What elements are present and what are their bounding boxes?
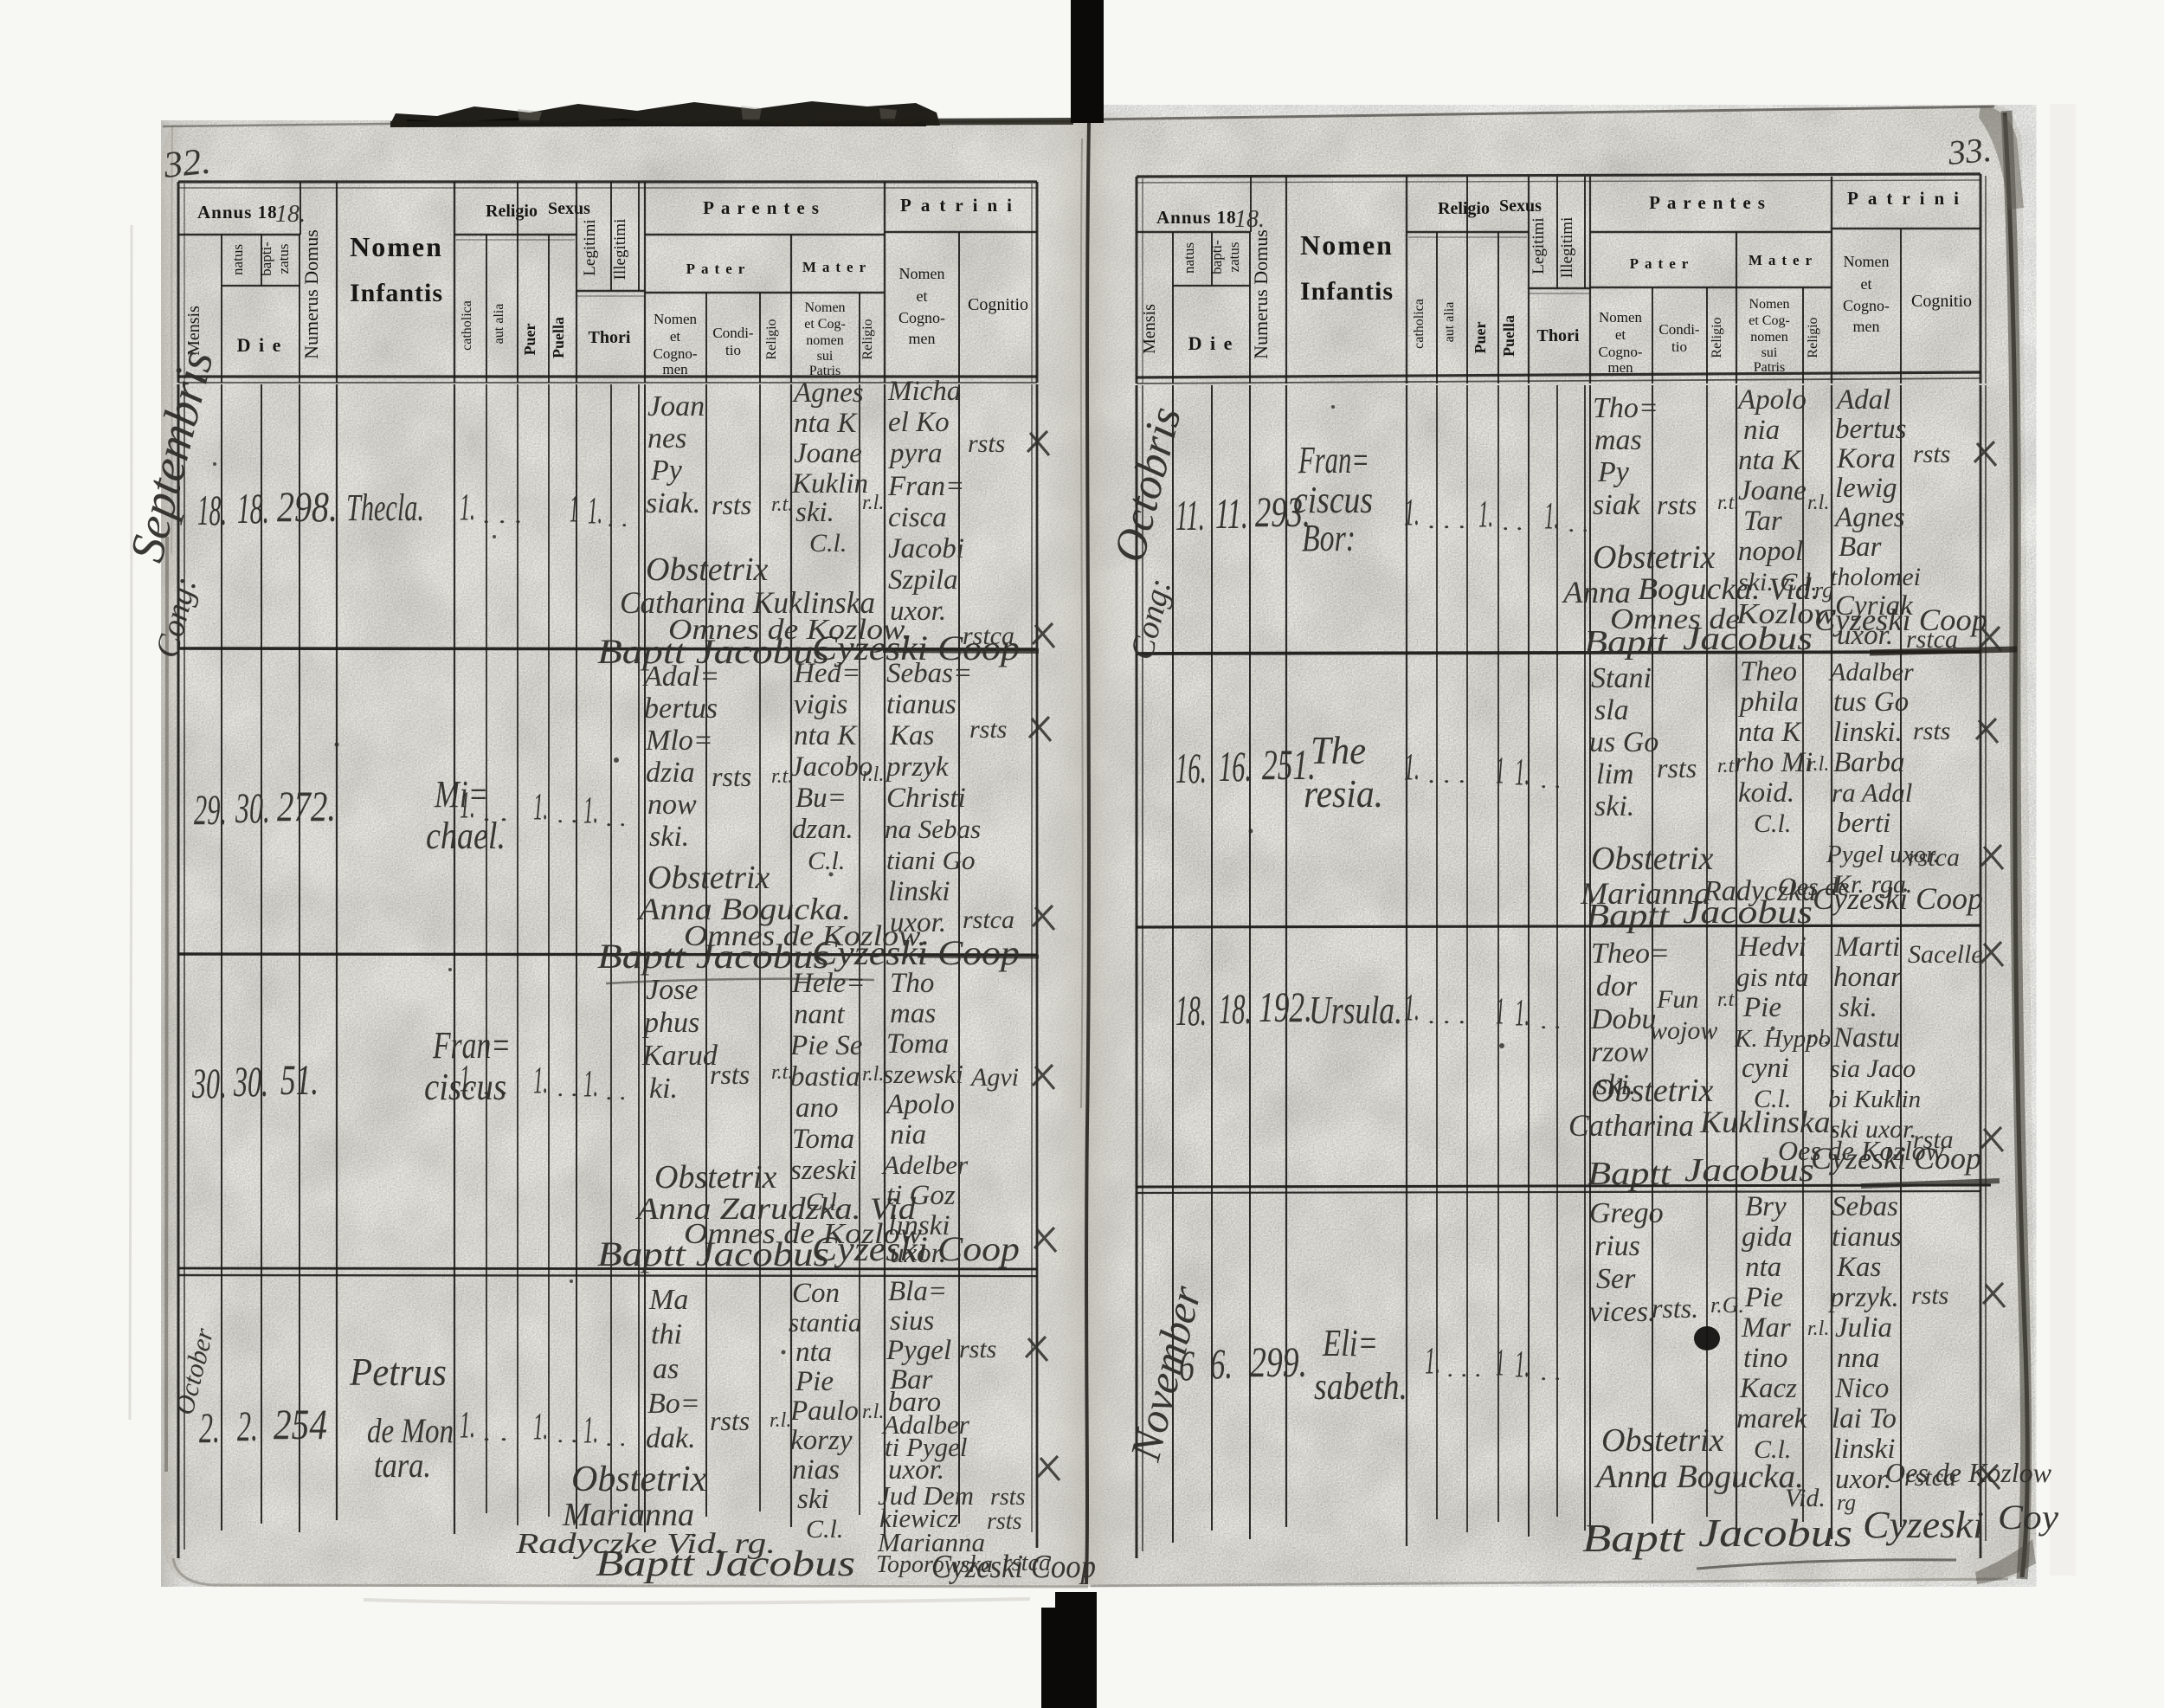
svg-text:Adal=: Adal= [642,661,719,693]
svg-text:Obstetrix: Obstetrix [1591,1073,1714,1109]
svg-text:16.: 16. [1219,742,1252,790]
svg-text:1.: 1. [583,1408,598,1451]
svg-text:Pie Se: Pie Se [789,1030,862,1061]
svg-text:299.: 299. [1250,1337,1307,1386]
svg-text:1.: 1. [1404,986,1420,1028]
svg-text:Fun: Fun [1656,985,1698,1014]
svg-text:Bar: Bar [1839,532,1882,563]
svg-text:1.: 1. [460,1403,475,1446]
svg-text:Obstetrix: Obstetrix [1593,539,1716,576]
svg-text:sui: sui [1761,345,1778,360]
svg-text:Bo=: Bo= [647,1388,700,1420]
svg-text:. .: . . [1503,510,1523,535]
svg-text:Cogno-: Cogno- [1843,297,1890,314]
svg-text:Nico: Nico [1834,1373,1889,1404]
svg-text:Nomen: Nomen [1300,229,1394,261]
svg-text:przyk.: przyk. [1828,1282,1899,1313]
svg-text:Religio: Religio [1438,199,1490,218]
svg-text:na Sebas: na Sebas [885,814,981,844]
svg-text:Numerus Domus: Numerus Domus [1250,229,1272,359]
svg-text:lai To: lai To [1832,1403,1897,1434]
svg-text:Marti: Marti [1834,931,1900,963]
svg-text:Kuklin: Kuklin [791,468,868,500]
svg-text:tianus: tianus [1832,1221,1902,1253]
svg-text:tholomei: tholomei [1830,563,1921,591]
svg-text:tio: tio [1671,338,1687,355]
svg-text:6: 6 [1179,1341,1195,1389]
svg-text:tus Go: tus Go [1833,686,1909,718]
svg-text:Religio: Religio [860,319,875,359]
svg-text:Cogno-: Cogno- [1599,344,1643,360]
svg-text:Fran=: Fran= [887,471,964,502]
svg-text:18.: 18. [1234,206,1265,233]
svg-text:Cyzeski Coop: Cyzeski Coop [812,1229,1020,1268]
svg-text:Religio: Religio [1806,317,1820,358]
svg-text:thi: thi [651,1318,682,1350]
svg-text:rzow: rzow [1591,1036,1648,1068]
svg-text:D i e: D i e [237,334,283,356]
svg-text:as: as [653,1353,679,1385]
svg-text:zatus: zatus [275,244,292,274]
svg-text:rsts: rsts [990,1484,1026,1511]
svg-text:dak.: dak. [646,1422,696,1454]
svg-text:Toma: Toma [886,1028,949,1060]
svg-text:catholica: catholica [460,300,474,351]
svg-text:Obstetrix: Obstetrix [1591,841,1714,877]
svg-text:men: men [1853,318,1880,335]
svg-text:tiani Go: tiani Go [886,845,975,875]
svg-text:r.l.: r.l. [862,764,884,786]
svg-text:Barba: Barba [1833,747,1905,778]
svg-text:Kora: Kora [1836,443,1896,474]
svg-text:Dobu: Dobu [1590,1003,1657,1035]
svg-text:nes: nes [647,422,686,454]
svg-text:Catharina: Catharina [1568,1108,1694,1143]
svg-text:Baptt: Baptt [1582,1516,1685,1560]
svg-text:ski.: ski. [1839,992,1877,1023]
svg-text:1.: 1. [533,1059,548,1101]
svg-text:sia Jaco: sia Jaco [1830,1054,1916,1083]
svg-text:nta K: nta K [1738,717,1802,748]
svg-text:us Go: us Go [1589,726,1658,758]
svg-text:2.: 2. [199,1403,220,1452]
svg-text:tara.: tara. [374,1446,431,1485]
svg-text:Religio: Religio [764,319,779,359]
svg-text:Sexus: Sexus [1499,197,1542,216]
svg-text:18.: 18. [237,484,269,532]
svg-text:Jacobi: Jacobi [888,533,964,564]
svg-text:Toma: Toma [792,1124,854,1155]
svg-text:siak.: siak. [646,487,700,519]
svg-text:Py: Py [1597,456,1630,488]
svg-text:ki.: ki. [649,1073,678,1105]
svg-text:Legitimi: Legitimi [1530,217,1548,274]
svg-text:rsts.: rsts. [1652,1292,1698,1324]
svg-text:1: 1 [1496,749,1504,791]
svg-text:11.: 11. [1215,489,1248,538]
svg-text:16.: 16. [1175,744,1207,792]
svg-text:Hedvi: Hedvi [1737,931,1807,963]
svg-text:korzy: korzy [790,1425,853,1456]
svg-text:r.l.: r.l. [862,492,884,514]
svg-text:r.l.: r.l. [862,1401,884,1423]
svg-text:Nomen: Nomen [899,265,945,282]
svg-text:honar: honar [1833,962,1902,993]
svg-text:rsts: rsts [710,1059,750,1090]
svg-text:mas: mas [1594,424,1642,456]
svg-text:Religio: Religio [486,202,538,221]
svg-text:Obstetrix: Obstetrix [571,1460,707,1499]
svg-text:Baptt: Baptt [1588,1156,1672,1192]
svg-text:1.: 1. [588,489,602,532]
svg-text:ski.: ski. [649,821,689,853]
svg-text:18.: 18. [1219,984,1252,1033]
svg-text:rstca: rstca [1908,843,1960,872]
svg-text:Jacobo: Jacobo [790,751,873,783]
svg-text:1.: 1. [460,486,475,528]
svg-text:Py: Py [650,454,683,487]
svg-text:Cogno-: Cogno- [654,345,698,362]
svg-text:Sebas: Sebas [1832,1191,1898,1222]
svg-text:. .: . . [557,1076,578,1101]
svg-text:dzia: dzia [646,757,695,789]
svg-text:bapti-: bapti- [258,242,274,276]
svg-text:koid.: koid. [1738,777,1794,809]
svg-text:Kuklinska.: Kuklinska. [1699,1105,1839,1139]
svg-text:Illegitimi: Illegitimi [611,219,629,280]
svg-text:ano: ano [795,1092,839,1124]
svg-text:nta K: nta K [794,408,858,439]
svg-text:Hele=: Hele= [791,968,866,999]
svg-text:nia: nia [890,1119,926,1150]
svg-text:tio: tio [725,342,741,358]
svg-text:1.: 1. [583,1062,598,1105]
svg-text:men: men [1607,359,1633,376]
svg-text:nant: nant [794,999,846,1030]
svg-text:Patris: Patris [809,364,840,378]
svg-text:Puella: Puella [550,317,567,358]
svg-text:Baptt Jacobus: Baptt Jacobus [596,1544,855,1584]
svg-text:nomen: nomen [806,333,844,348]
svg-text:Jacobus: Jacobus [1683,621,1813,657]
svg-text:6.: 6. [1210,1339,1233,1388]
svg-text:Pygel: Pygel [886,1335,951,1366]
svg-text:Nomen: Nomen [654,311,698,327]
svg-text:men: men [909,330,936,347]
svg-text:Joane: Joane [1738,475,1807,506]
svg-text:rsts: rsts [1913,717,1950,745]
svg-text:Paulo: Paulo [789,1395,859,1427]
svg-text:Petrus: Petrus [349,1350,447,1394]
svg-text:18.: 18. [275,201,306,228]
svg-text:Bry: Bry [1745,1191,1787,1222]
svg-text:de Mon: de Mon [367,1411,454,1450]
svg-text:. .: . . [608,506,628,532]
svg-text:bastia: bastia [790,1061,860,1092]
svg-text:Cyzeski: Cyzeski [1863,1504,1984,1546]
svg-text:phila: phila [1738,686,1799,718]
svg-text:natus: natus [229,244,246,275]
svg-text:Joan: Joan [647,390,705,422]
svg-text:. .: . . [557,802,578,828]
svg-text:Mater: Mater [1749,252,1818,268]
svg-text:Patris: Patris [1754,360,1785,375]
svg-text:Obstetrix: Obstetrix [1601,1422,1724,1459]
svg-text:nta: nta [1745,1252,1781,1283]
svg-text:Tho: Tho [890,968,934,999]
svg-text:192.: 192. [1259,983,1312,1031]
svg-text:Jacobus: Jacobus [1683,894,1813,931]
svg-text:Nomen: Nomen [1599,309,1643,325]
svg-text:Adelber: Adelber [881,1150,969,1180]
svg-text:phus: phus [642,1007,699,1039]
svg-text:et Cog-: et Cog- [1749,313,1790,328]
svg-text:ski.: ski. [1594,790,1634,822]
svg-text:Puer: Puer [521,323,538,355]
svg-text:C.l.: C.l. [809,529,847,558]
svg-text:Parentes: Parentes [703,197,826,218]
svg-text:30.: 30. [235,783,270,832]
svg-text:Pie: Pie [795,1366,834,1397]
svg-text:aut alia: aut alia [492,304,506,345]
svg-text:Baptt: Baptt [1584,624,1669,661]
svg-text:Sacelle: Sacelle [1908,940,1983,969]
svg-text:1.: 1. [1515,991,1530,1034]
svg-text:Agnes: Agnes [792,377,864,409]
svg-text:Tho=: Tho= [1593,392,1658,424]
svg-text:. . .: . . . [1447,1357,1482,1382]
svg-text:Mater: Mater [802,259,872,275]
svg-text:rsts: rsts [968,429,1005,458]
svg-text:Ser: Ser [1596,1263,1636,1295]
svg-text:1.: 1. [1478,493,1493,535]
svg-text:Szpila: Szpila [888,564,958,596]
svg-text:catholica: catholica [1412,299,1427,349]
svg-text:Theo=: Theo= [1591,938,1670,970]
svg-text:nta K: nta K [1738,445,1802,476]
svg-text:Theo: Theo [1740,656,1797,687]
svg-text:1.: 1. [1425,1339,1440,1382]
svg-text:Illegitimi: Illegitimi [1558,217,1576,279]
svg-text:et: et [1615,326,1626,343]
svg-text:. .: . . [483,801,509,826]
svg-text:szewski: szewski [883,1059,963,1089]
svg-text:Agnes: Agnes [1833,502,1905,533]
svg-text:Jacobus: Jacobus [1684,1152,1814,1189]
svg-text:Cyzeski Coop: Cyzeski Coop [812,933,1020,972]
svg-text:et Cog-: et Cog- [804,317,846,332]
svg-text:tianus: tianus [886,689,956,720]
svg-text:Patrini: Patrini [900,195,1021,216]
svg-text:vices.: vices. [1589,1296,1655,1328]
svg-text:r.t.: r.t. [771,493,793,516]
svg-text:gida: gida [1742,1221,1793,1253]
svg-text:rstca: rstca [963,906,1014,934]
svg-text:et: et [917,287,928,305]
svg-text:Puer: Puer [1472,321,1489,353]
svg-text:rsts: rsts [959,1335,996,1363]
svg-text:Kacz: Kacz [1739,1373,1797,1404]
svg-text:berti: berti [1837,808,1890,839]
svg-text:Condi-: Condi- [712,325,754,341]
svg-text:Kas: Kas [1836,1252,1881,1283]
svg-text:Mensis: Mensis [1140,304,1159,354]
svg-text:resia.: resia. [1304,771,1383,815]
svg-text:nias: nias [792,1454,840,1486]
svg-text:Ursula.: Ursula. [1309,988,1402,1032]
svg-text:natus: natus [1181,242,1197,274]
svg-text:254: 254 [274,1400,327,1448]
svg-text:11.: 11. [1175,491,1205,539]
svg-text:Nomen: Nomen [804,300,845,315]
svg-text:Jose: Jose [646,974,698,1006]
svg-text:szeski: szeski [790,1155,857,1186]
svg-text:30.: 30. [191,1059,227,1107]
svg-text:nta K: nta K [794,720,858,751]
svg-text:gis nta: gis nta [1736,962,1809,992]
svg-text:r.G.: r.G. [1710,1292,1744,1318]
svg-text:cisca: cisca [888,502,947,533]
svg-text:Cyzeski Coop: Cyzeski Coop [1813,881,1983,916]
svg-text:marek: marek [1736,1403,1808,1434]
svg-text:Obstetrix: Obstetrix [646,551,769,588]
svg-text:rsts: rsts [987,1508,1022,1535]
svg-text:stantia: stantia [789,1307,861,1337]
svg-text:tino: tino [1743,1343,1787,1374]
svg-text:sla: sla [1594,694,1629,726]
svg-text:bertus: bertus [1835,414,1907,445]
svg-text:rsts: rsts [1911,1281,1948,1310]
svg-text:Apolo: Apolo [1736,384,1807,416]
svg-text:aut alia: aut alia [1442,302,1457,343]
svg-text:Hed=: Hed= [793,658,860,689]
svg-text:Apolo: Apolo [885,1089,955,1120]
svg-text:1.: 1. [1404,745,1420,788]
svg-text:Christi: Christi [886,783,966,814]
svg-text:Nastu: Nastu [1832,1022,1900,1054]
svg-text:Numerus Domus: Numerus Domus [300,229,322,359]
svg-text:Sebas=: Sebas= [886,658,972,689]
svg-text:Cognitio: Cognitio [968,295,1028,314]
svg-text:Tar: Tar [1743,506,1782,537]
svg-text:. .: . . [1541,768,1562,793]
svg-text:rsts: rsts [712,489,751,520]
svg-text:nta: nta [795,1337,832,1368]
svg-text:272.: 272. [277,782,336,830]
svg-text:29.: 29. [194,785,227,834]
svg-text:. .: . . [1568,512,1589,537]
svg-text:ski.: ski. [795,497,834,528]
svg-text:Stani: Stani [1591,662,1652,694]
svg-text:rsts: rsts [1657,752,1697,783]
svg-text:Pater: Pater [686,261,751,277]
svg-text:18.: 18. [1175,986,1207,1034]
svg-text:Jacobus: Jacobus [1698,1511,1852,1555]
svg-text:Ma: Ma [648,1284,688,1316]
svg-text:lewig: lewig [1835,473,1897,504]
svg-text:Bla=: Bla= [888,1276,947,1307]
svg-text:mas: mas [890,998,936,1029]
svg-text:Thori: Thori [589,328,631,347]
svg-text:Nomen: Nomen [1844,253,1890,270]
svg-text:ski: ski [797,1484,829,1515]
svg-text:Annus 18: Annus 18 [1156,207,1237,228]
svg-text:ciscus: ciscus [1293,479,1373,521]
svg-text:Bor:: Bor: [1302,517,1356,559]
svg-text:Patrini: Patrini [1847,188,1968,209]
svg-text:Karud: Karud [641,1040,718,1072]
svg-text:rsts: rsts [1657,489,1697,520]
svg-text:cyni: cyni [1742,1053,1789,1084]
svg-text:dor: dor [1596,970,1638,1002]
svg-text:Legitimi: Legitimi [581,219,599,275]
svg-text:298.: 298. [277,482,338,531]
svg-text:Oes de Kozlow: Oes de Kozlow [1885,1457,2052,1488]
svg-text:Pie: Pie [1744,1282,1783,1313]
svg-text:wojow: wojow [1650,1016,1717,1045]
svg-text:1.: 1. [1515,1343,1530,1385]
svg-text:. .: . . [1541,1360,1562,1385]
svg-text:Pater: Pater [1630,255,1695,272]
svg-text:Adal: Adal [1835,384,1890,416]
svg-text:et: et [670,328,681,345]
svg-text:. .: . . [483,1421,509,1446]
svg-text:r.l.: r.l. [1807,1027,1829,1049]
svg-text:Micha: Micha [887,376,961,407]
svg-text:sabeth.: sabeth. [1314,1365,1407,1408]
svg-text:Baptt Jacobus: Baptt Jacobus [597,1234,829,1273]
svg-text:Joane: Joane [794,438,862,469]
svg-text:Cognitio: Cognitio [1911,292,1972,311]
svg-text:Condi-: Condi- [1658,321,1700,338]
svg-text:linski.: linski. [1833,717,1903,748]
svg-text:Cyzeski Coop: Cyzeski Coop [931,1549,1096,1585]
svg-text:Vid.: Vid. [1785,1484,1826,1512]
svg-text:bi Kuklin: bi Kuklin [1828,1086,1921,1113]
svg-text:Adalber: Adalber [1828,658,1914,686]
svg-text:lim: lim [1596,758,1633,790]
svg-text:rsts: rsts [969,715,1007,744]
svg-text:r.l.: r.l. [770,1409,791,1432]
svg-text:bertus: bertus [644,693,718,725]
svg-text:18.: 18. [197,486,227,534]
svg-text:Agvi: Agvi [969,1063,1019,1092]
svg-text:Obstetrix: Obstetrix [647,860,770,896]
svg-text:bapti-: bapti- [1208,240,1225,274]
svg-text:33.: 33. [1946,130,1993,172]
svg-text:linski: linski [888,876,950,907]
svg-text:sius: sius [890,1305,934,1337]
svg-text:. .: . . [606,806,627,831]
svg-text:Thecla.: Thecla. [346,487,424,529]
svg-text:32.: 32. [161,141,212,186]
svg-text:C.l.: C.l. [1754,809,1791,838]
svg-text:Anna Bogucka.: Anna Bogucka. [1594,1459,1804,1495]
svg-text:. .: . . [557,1422,578,1447]
svg-text:Thori: Thori [1537,326,1580,345]
svg-text:zatus: zatus [1226,242,1242,273]
svg-text:. . .: . . . [1428,763,1466,788]
svg-text:1.: 1. [460,1057,475,1099]
svg-text:1: 1 [1496,989,1504,1032]
svg-text:r.t.: r.t. [1717,492,1739,514]
svg-text:51.: 51. [280,1055,319,1104]
svg-text:r.l.: r.l. [1807,753,1829,776]
svg-text:Kas: Kas [889,720,934,751]
svg-text:C.l.: C.l. [808,847,845,875]
svg-text:Grego: Grego [1589,1197,1664,1229]
svg-text:1.: 1. [533,785,548,828]
